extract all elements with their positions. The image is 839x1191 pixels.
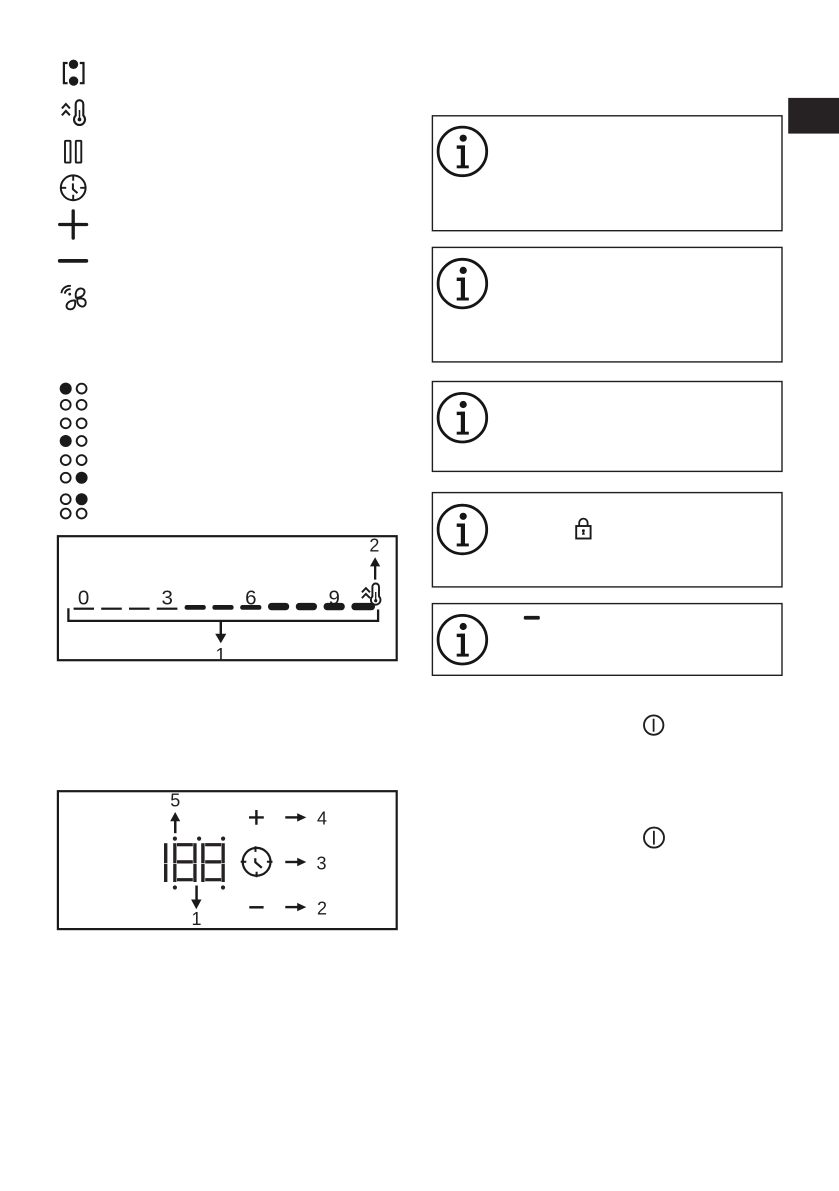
svg-text:2: 2 — [317, 898, 327, 918]
svg-text:2: 2 — [369, 536, 379, 556]
svg-text:0: 0 — [78, 587, 89, 610]
svg-text:4: 4 — [317, 809, 327, 829]
svg-text:5: 5 — [170, 791, 180, 811]
svg-text:1: 1 — [191, 909, 201, 929]
svg-text:3: 3 — [316, 854, 326, 874]
svg-text:3: 3 — [161, 587, 172, 610]
svg-text:1: 1 — [215, 644, 225, 665]
